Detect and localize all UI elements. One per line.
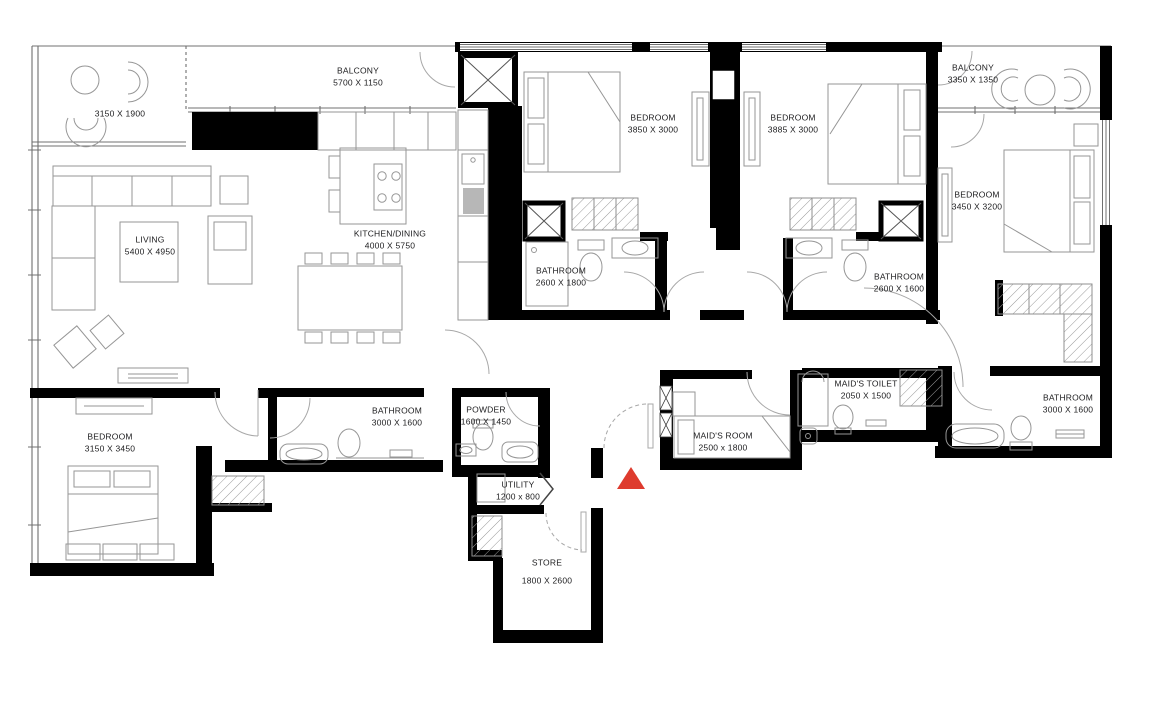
room-name: BATHROOM xyxy=(536,266,586,278)
room-label-bedroom-4: BEDROOM 3150 X 3450 xyxy=(85,432,135,455)
room-dims: 1200 x 800 xyxy=(496,491,540,503)
room-name: MAID'S TOILET xyxy=(835,379,898,391)
room-dims: 2050 X 1500 xyxy=(835,390,898,402)
wardrobe-hatch-layer xyxy=(212,198,1092,556)
room-label-maids-room: MAID'S ROOM 2500 x 1800 xyxy=(693,431,753,454)
room-label-living: LIVING 5400 X 4950 xyxy=(125,235,175,258)
room-label-powder: POWDER 1600 X 1450 xyxy=(461,405,511,428)
window-rails-layer xyxy=(28,46,1111,563)
room-name: BEDROOM xyxy=(628,113,678,125)
room-dims: 3150 X 3450 xyxy=(85,443,135,455)
room-dims: 2500 x 1800 xyxy=(693,442,753,454)
room-dims: 1600 X 1450 xyxy=(461,416,511,428)
room-label-bathroom-3: BATHROOM 3000 X 1600 xyxy=(1043,393,1093,416)
duct-shaft-icon xyxy=(881,203,921,239)
room-label-maids-toilet: MAID'S TOILET 2050 X 1500 xyxy=(835,379,898,402)
duct-shaft-icon xyxy=(525,203,563,239)
room-dims: 2600 X 1600 xyxy=(874,283,924,295)
room-name: BEDROOM xyxy=(768,113,818,125)
room-name: KITCHEN/DINING xyxy=(354,229,426,241)
room-name: BEDROOM xyxy=(952,190,1002,202)
room-label-bathroom-1: BATHROOM 2600 X 1800 xyxy=(536,266,586,289)
room-label-balcony-top: BALCONY 5700 X 1150 xyxy=(333,66,383,89)
room-label-store: STORE 1800 X 2600 xyxy=(522,558,572,587)
room-dims: 3000 X 1600 xyxy=(1043,404,1093,416)
floorplan-drawing xyxy=(0,0,1152,728)
room-name: STORE xyxy=(522,558,572,570)
room-label-bedroom-1: BEDROOM 3850 X 3000 xyxy=(628,113,678,136)
room-dims: 5400 X 4950 xyxy=(125,246,175,258)
room-dims: 3450 X 3200 xyxy=(952,201,1002,213)
room-dims: 3150 X 1900 xyxy=(95,108,145,120)
room-label-bedroom-2: BEDROOM 3885 X 3000 xyxy=(768,113,818,136)
room-name: BATHROOM xyxy=(874,272,924,284)
room-dims: 3850 X 3000 xyxy=(628,124,678,136)
room-label-bathroom-4: BATHROOM 3000 X 1600 xyxy=(372,406,422,429)
room-dims: 3000 X 1600 xyxy=(372,417,422,429)
floorplan-page: 3150 X 1900 BALCONY 5700 X 1150 LIVING 5… xyxy=(0,0,1152,728)
room-name: UTILITY xyxy=(496,480,540,492)
room-dims: 5700 X 1150 xyxy=(333,77,383,89)
entrance-marker-icon xyxy=(617,467,645,489)
room-dims: 3350 X 1350 xyxy=(948,74,998,86)
room-name: LIVING xyxy=(125,235,175,247)
room-label-balcony-right: BALCONY 3350 X 1350 xyxy=(948,63,998,86)
room-name: POWDER xyxy=(461,405,511,417)
room-label-bathroom-2: BATHROOM 2600 X 1600 xyxy=(874,272,924,295)
room-name: BEDROOM xyxy=(85,432,135,444)
walls-layer xyxy=(30,42,1112,643)
room-label-balcony-left: 3150 X 1900 xyxy=(95,108,145,120)
room-dims: 1800 X 2600 xyxy=(522,575,572,587)
room-name: BATHROOM xyxy=(372,406,422,418)
room-label-kitchen-dining: KITCHEN/DINING 4000 X 5750 xyxy=(354,229,426,252)
room-name: BALCONY xyxy=(333,66,383,78)
elevator-shaft-icon xyxy=(461,55,515,105)
room-name: BATHROOM xyxy=(1043,393,1093,405)
room-label-bedroom-3: BEDROOM 3450 X 3200 xyxy=(952,190,1002,213)
room-name: MAID'S ROOM xyxy=(693,431,753,443)
room-label-utility: UTILITY 1200 x 800 xyxy=(496,480,540,503)
room-dims: 3885 X 3000 xyxy=(768,124,818,136)
room-name: BALCONY xyxy=(948,63,998,75)
room-dims: 4000 X 5750 xyxy=(354,240,426,252)
door-swings-layer xyxy=(215,51,992,552)
room-dims: 2600 X 1800 xyxy=(536,277,586,289)
